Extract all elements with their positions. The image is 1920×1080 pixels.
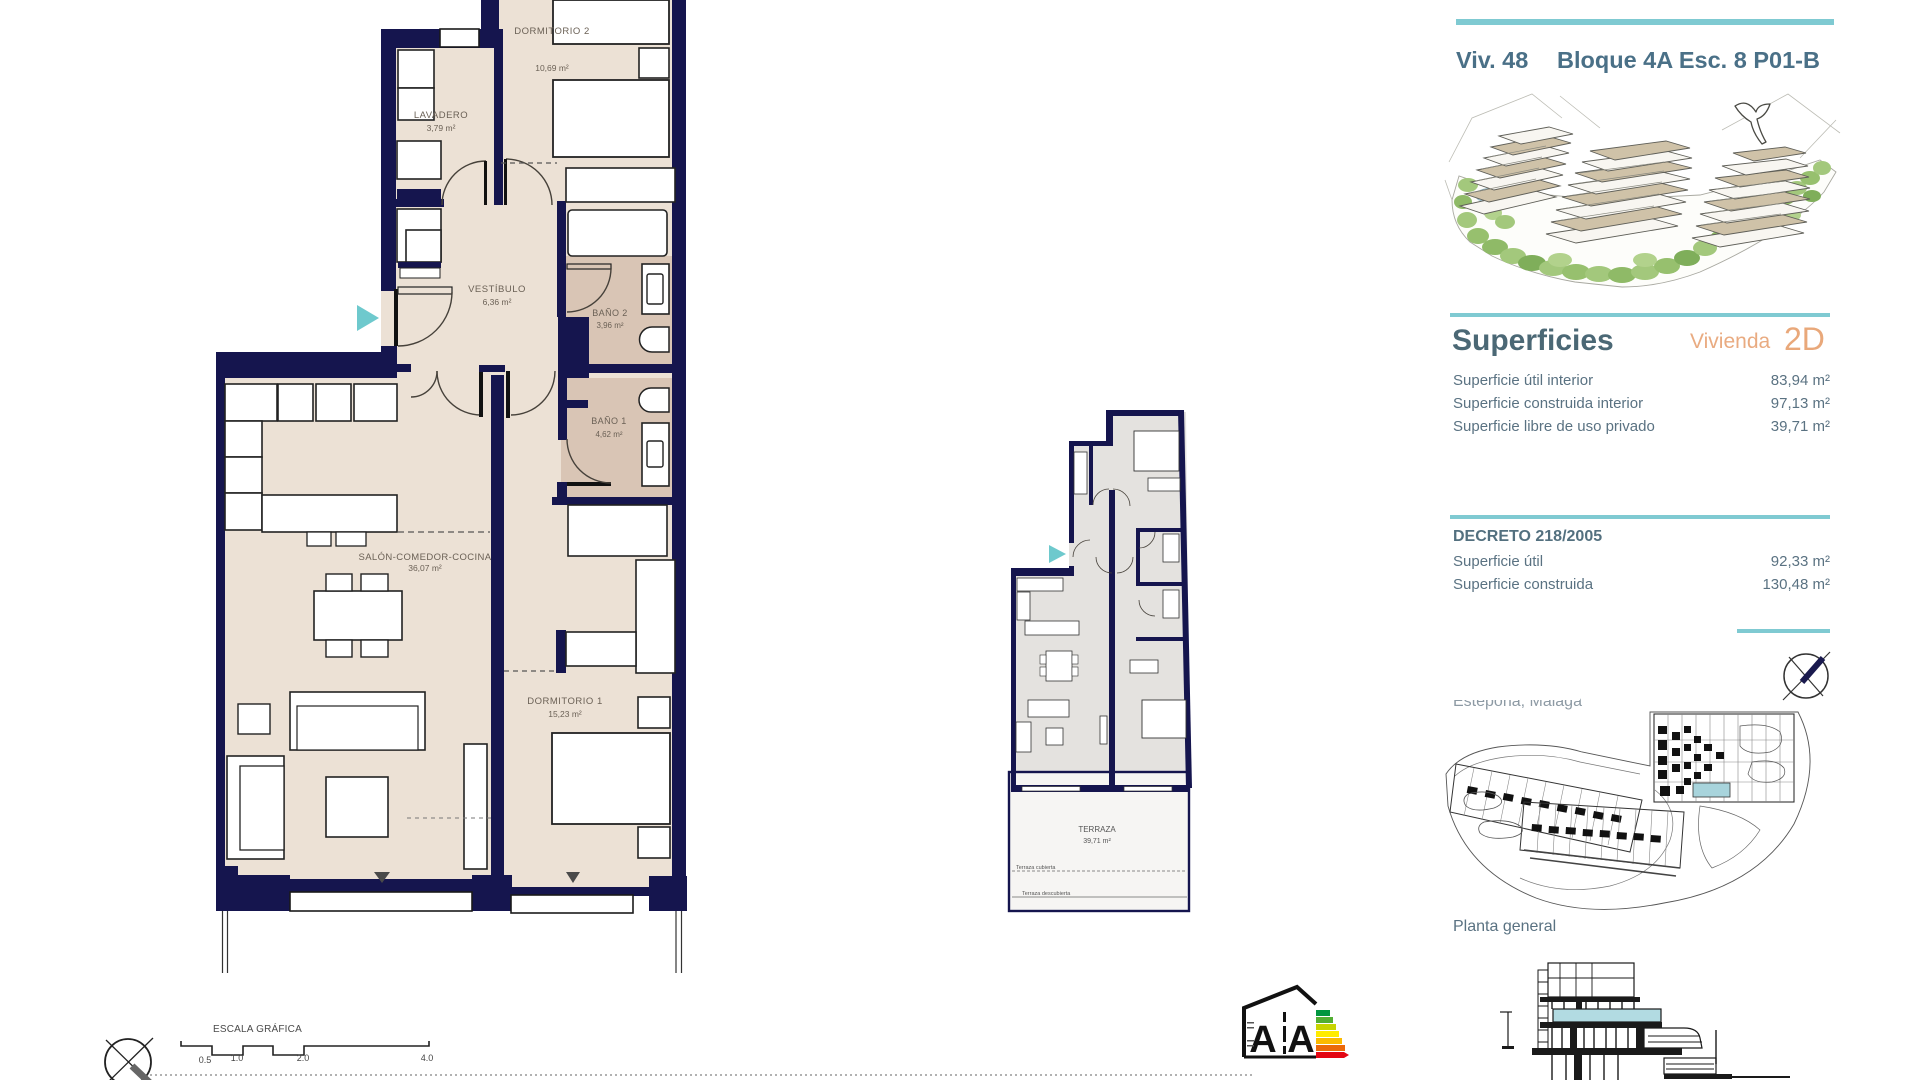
svg-text:Bloque 4A Esc. 8 P01-B: Bloque 4A Esc. 8 P01-B [1557, 47, 1820, 73]
svg-text:2.0: 2.0 [297, 1053, 310, 1063]
svg-text:15,23 m²: 15,23 m² [548, 709, 582, 719]
svg-text:2D: 2D [1784, 321, 1825, 357]
svg-text:39,71 m²: 39,71 m² [1771, 418, 1830, 435]
svg-text:3,79 m²: 3,79 m² [427, 123, 456, 133]
svg-text:4,62 m²: 4,62 m² [595, 430, 622, 439]
svg-text:BAÑO 1: BAÑO 1 [591, 416, 626, 426]
svg-text:VESTÍBULO: VESTÍBULO [468, 284, 526, 295]
svg-text:TERRAZA: TERRAZA [1078, 825, 1116, 834]
svg-text:Superficies: Superficies [1452, 324, 1614, 357]
svg-text:Superficie útil interior: Superficie útil interior [1453, 372, 1593, 389]
svg-text:0.5: 0.5 [199, 1055, 212, 1065]
svg-text:LAVADERO: LAVADERO [414, 110, 468, 121]
svg-text:36,07 m²: 36,07 m² [408, 563, 442, 573]
svg-text:SALÓN-COMEDOR-COCINA: SALÓN-COMEDOR-COCINA [358, 552, 491, 563]
svg-text:Terraza cubierta: Terraza cubierta [1016, 865, 1056, 871]
svg-text:Superficie libre de uso privad: Superficie libre de uso privado [1453, 418, 1655, 435]
svg-text:BAÑO 2: BAÑO 2 [592, 308, 627, 318]
svg-text:ESCALA GRÁFICA: ESCALA GRÁFICA [213, 1022, 302, 1035]
svg-text:4.0: 4.0 [421, 1053, 434, 1063]
svg-text:Planta general: Planta general [1453, 918, 1556, 935]
svg-text:Superficie útil: Superficie útil [1453, 553, 1543, 570]
svg-text:Viv. 48: Viv. 48 [1456, 47, 1528, 73]
svg-text:83,94 m²: 83,94 m² [1771, 372, 1830, 389]
svg-text:Superficie construida interior: Superficie construida interior [1453, 395, 1643, 412]
svg-text:DORMITORIO 1: DORMITORIO 1 [527, 696, 603, 707]
svg-text:A: A [1287, 1019, 1314, 1061]
svg-text:DECRETO 218/2005: DECRETO 218/2005 [1453, 528, 1602, 545]
svg-text:DORMITORIO 2: DORMITORIO 2 [514, 26, 590, 37]
svg-text:6,36 m²: 6,36 m² [483, 297, 512, 307]
svg-text:Superficie construida: Superficie construida [1453, 576, 1594, 593]
svg-text:39,71 m²: 39,71 m² [1083, 838, 1111, 845]
svg-text:Vivienda: Vivienda [1690, 330, 1770, 353]
svg-text:92,33 m²: 92,33 m² [1771, 553, 1830, 570]
svg-text:130,48 m²: 130,48 m² [1762, 576, 1830, 593]
svg-text:Terraza descubierta: Terraza descubierta [1022, 891, 1071, 897]
svg-text:97,13 m²: 97,13 m² [1771, 395, 1830, 412]
svg-text:3,96 m²: 3,96 m² [596, 321, 623, 330]
svg-text:10,69 m²: 10,69 m² [535, 63, 569, 73]
svg-text:1.0: 1.0 [231, 1053, 244, 1063]
